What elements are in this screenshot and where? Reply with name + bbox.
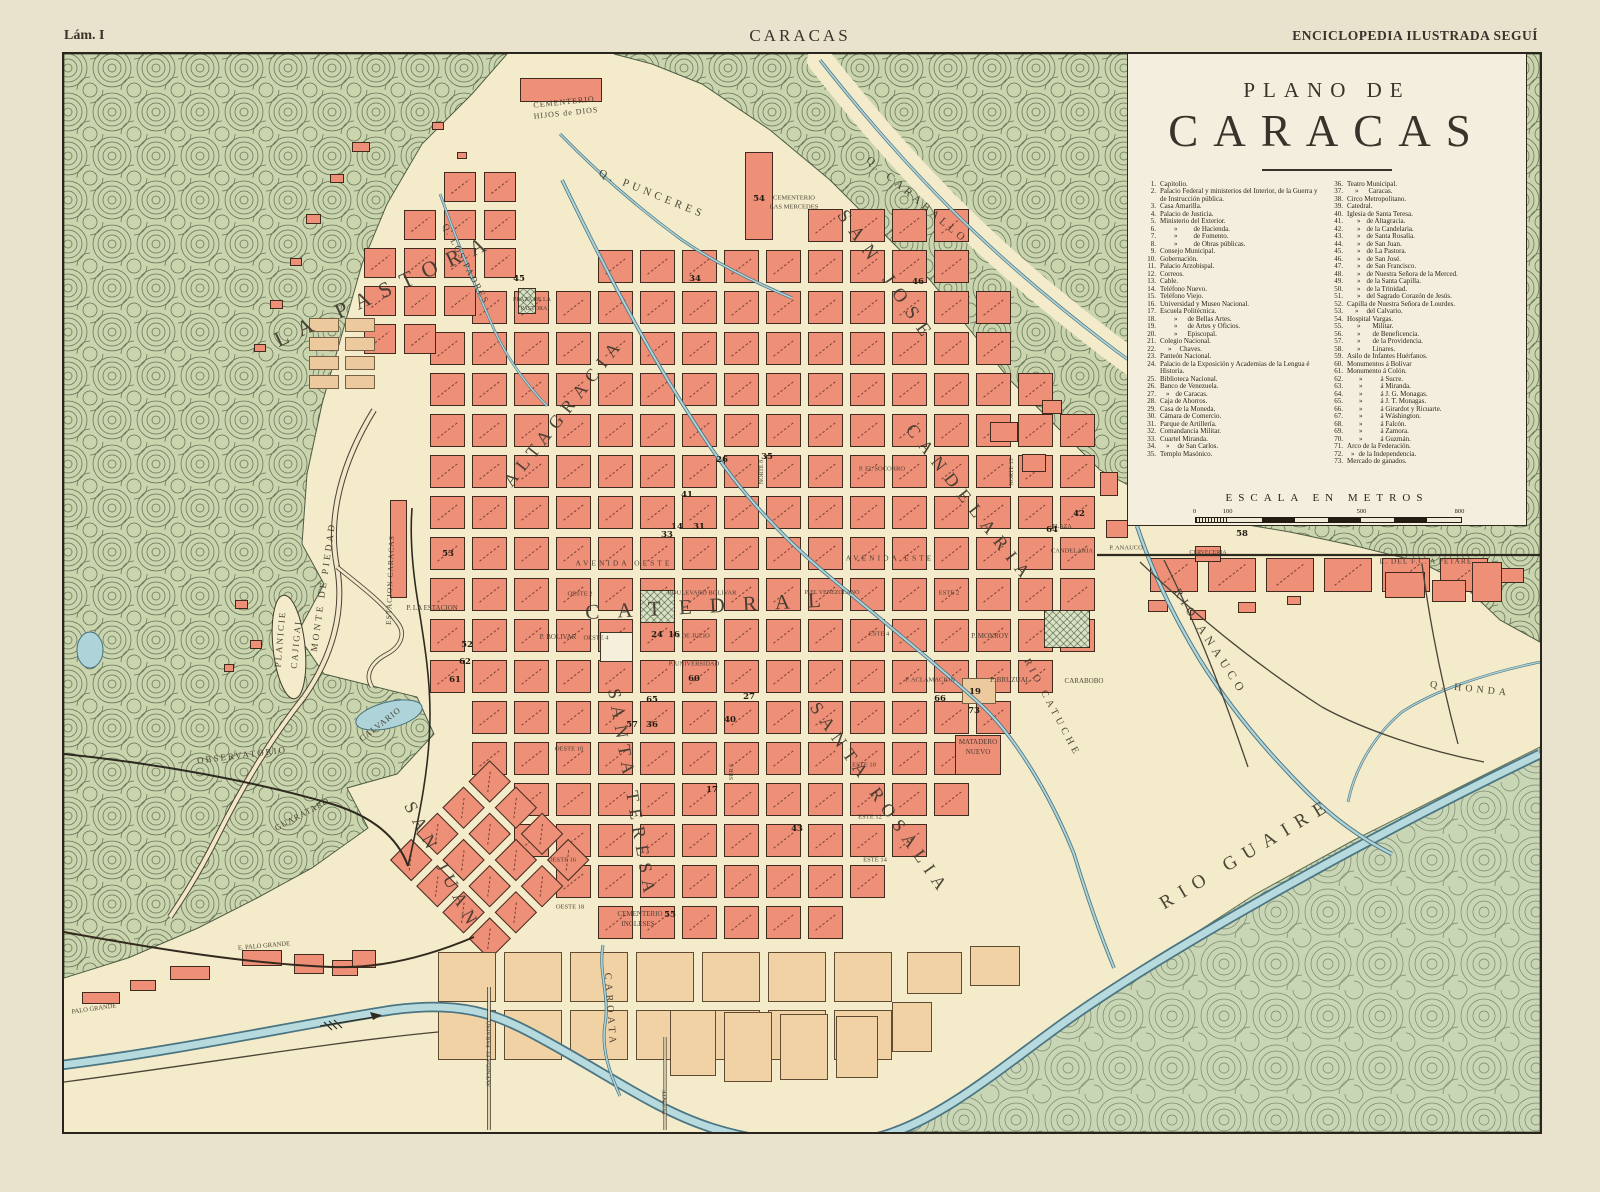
city-block xyxy=(640,496,675,529)
city-block xyxy=(514,373,549,406)
scale-bar-segments xyxy=(1195,517,1462,523)
city-block xyxy=(990,422,1018,442)
map-label: CARABOBO xyxy=(1065,677,1104,685)
city-block xyxy=(808,537,843,570)
city-block xyxy=(724,291,759,324)
legend-item: 66.»á Girardot y Ricuarte. xyxy=(1329,406,1514,414)
city-block xyxy=(724,414,759,447)
map-number-marker: 35 xyxy=(761,452,773,462)
map-number-marker: 43 xyxy=(791,824,803,834)
map-label: BOULEVARD BOLIVAR xyxy=(668,590,737,597)
city-block xyxy=(1018,414,1053,447)
city-block xyxy=(766,332,801,365)
page: { "header": { "plate": "Lám. I", "title"… xyxy=(0,0,1600,1192)
map-label: MATADERO xyxy=(959,738,997,746)
city-block xyxy=(724,250,759,283)
city-block xyxy=(556,332,591,365)
city-block xyxy=(808,250,843,283)
city-block xyxy=(934,537,969,570)
city-block xyxy=(640,455,675,488)
city-block xyxy=(242,950,282,966)
city-block xyxy=(682,865,717,898)
city-block xyxy=(598,414,633,447)
city-block xyxy=(808,455,843,488)
map-label: P. EL SOCORRO xyxy=(859,466,905,473)
city-block xyxy=(934,291,969,324)
city-block xyxy=(892,496,927,529)
city-block xyxy=(1106,520,1128,538)
city-block xyxy=(598,496,633,529)
city-block xyxy=(290,258,302,266)
map-label: ESTE 4 xyxy=(869,631,889,638)
map-label: P. LA ESTACION xyxy=(406,604,457,612)
city-block xyxy=(598,291,633,324)
city-block xyxy=(1060,414,1095,447)
city-block xyxy=(850,291,885,324)
map-label: OESTE 4 xyxy=(583,635,608,642)
city-block xyxy=(514,578,549,611)
legend-item: 19.»de Artes y Oficios. xyxy=(1142,323,1321,331)
city-block xyxy=(1100,472,1118,496)
city-block xyxy=(1238,602,1256,613)
map-number-marker: 31 xyxy=(693,522,705,532)
city-block xyxy=(976,701,1011,734)
city-block xyxy=(640,414,675,447)
city-block xyxy=(1148,600,1168,612)
map-number-marker: 62 xyxy=(459,657,471,667)
city-block xyxy=(224,664,234,672)
city-block xyxy=(1432,580,1466,602)
city-block xyxy=(724,660,759,693)
map-number-marker: 40 xyxy=(724,715,736,725)
map-label: AVENIDA EL PARAISO xyxy=(486,1021,493,1088)
map-label: ESTE 10 xyxy=(852,762,876,769)
legend-item: 68.»á Falcón. xyxy=(1329,421,1514,429)
scale-tick: 0 xyxy=(1193,508,1196,515)
city-block xyxy=(766,373,801,406)
map-number-marker: 17 xyxy=(706,785,718,795)
city-block xyxy=(306,214,321,224)
city-block xyxy=(514,332,549,365)
city-block xyxy=(484,172,516,202)
city-block xyxy=(808,906,843,939)
city-block xyxy=(892,742,927,775)
city-block xyxy=(934,250,969,283)
map-number-marker: 42 xyxy=(1073,509,1085,519)
city-block xyxy=(724,783,759,816)
map-label: ESTE 2 xyxy=(939,590,959,597)
city-block xyxy=(430,414,465,447)
city-block xyxy=(472,455,507,488)
city-block xyxy=(808,291,843,324)
city-block xyxy=(556,496,591,529)
city-block xyxy=(430,496,465,529)
city-block xyxy=(682,742,717,775)
city-block xyxy=(724,1012,772,1082)
map-label: P. ANAUCO xyxy=(1109,545,1143,552)
city-block xyxy=(556,701,591,734)
city-block xyxy=(976,578,1011,611)
city-block xyxy=(682,537,717,570)
city-block xyxy=(892,373,927,406)
city-block xyxy=(430,373,465,406)
map-number-marker: 26 xyxy=(716,455,728,465)
plaza-park xyxy=(1044,610,1090,648)
city-block xyxy=(309,337,339,351)
city-block xyxy=(1287,596,1301,605)
map-number-marker: 45 xyxy=(513,274,525,284)
city-block xyxy=(970,946,1020,986)
city-block xyxy=(766,537,801,570)
map-number-marker: 46 xyxy=(912,277,924,287)
scale-bar: ESCALA EN METROS 0100500800 xyxy=(1128,492,1526,524)
city-block xyxy=(724,619,759,652)
city-block xyxy=(934,783,969,816)
map-title-line1: PLANO DE xyxy=(1128,78,1526,103)
map-title-line2: CARACAS xyxy=(1128,105,1526,157)
city-block xyxy=(472,578,507,611)
map-label: PUENTE xyxy=(662,1090,669,1115)
city-block xyxy=(556,660,591,693)
city-block xyxy=(514,701,549,734)
map-label: INGLESES xyxy=(621,920,654,928)
city-block xyxy=(345,375,375,389)
city-block xyxy=(934,414,969,447)
legend-item: 67.»á Wáshington. xyxy=(1329,413,1514,421)
city-block xyxy=(976,373,1011,406)
city-block xyxy=(724,865,759,898)
map-number-marker: 60 xyxy=(688,674,700,684)
map-label: PASTORA xyxy=(521,306,548,312)
city-block xyxy=(724,455,759,488)
city-block xyxy=(892,578,927,611)
city-block xyxy=(766,496,801,529)
city-block xyxy=(670,1010,716,1076)
city-block xyxy=(1042,400,1062,414)
city-block xyxy=(682,824,717,857)
city-block xyxy=(892,701,927,734)
city-block xyxy=(682,701,717,734)
city-block xyxy=(345,337,375,351)
city-block xyxy=(850,824,885,857)
scale-tick: 500 xyxy=(1357,508,1367,515)
map-number-marker: 57 xyxy=(626,720,638,730)
city-block xyxy=(345,356,375,370)
publisher-name: ENCICLOPEDIA ILUSTRADA SEGUÍ xyxy=(1292,28,1538,44)
map-number-marker: 52 xyxy=(461,640,473,650)
map-label: AVENIDA OESTE xyxy=(576,559,673,568)
city-block xyxy=(294,954,324,974)
city-block xyxy=(766,906,801,939)
city-block xyxy=(780,1014,828,1080)
riverbank-southeast xyxy=(900,747,1540,1132)
city-block xyxy=(934,619,969,652)
city-block xyxy=(472,414,507,447)
city-block xyxy=(682,291,717,324)
scale-label: ESCALA EN METROS xyxy=(1128,492,1526,504)
city-block xyxy=(808,619,843,652)
city-block xyxy=(892,619,927,652)
city-block xyxy=(598,865,633,898)
map-number-marker: 41 xyxy=(681,490,693,500)
city-block xyxy=(934,701,969,734)
city-block xyxy=(850,414,885,447)
map-label: CEMENTERIO xyxy=(773,195,815,202)
city-block xyxy=(766,414,801,447)
map-number-marker: 66 xyxy=(934,694,946,704)
city-block xyxy=(768,952,826,1002)
map-label: P. ACLAMACION xyxy=(905,677,955,684)
map-number-marker: 54 xyxy=(753,194,765,204)
city-block xyxy=(170,966,210,980)
city-block xyxy=(724,332,759,365)
city-block xyxy=(850,865,885,898)
legend-panel: PLANO DE CARACAS 1.Capitolio.2.Palacio F… xyxy=(1127,53,1527,526)
city-block xyxy=(1472,562,1502,602)
scale-tick: 800 xyxy=(1455,508,1465,515)
city-block xyxy=(976,291,1011,324)
map-label: E. DEL F.C. A PETARE xyxy=(1380,557,1473,566)
city-block xyxy=(850,660,885,693)
city-block xyxy=(808,496,843,529)
city-block xyxy=(808,373,843,406)
city-block xyxy=(598,455,633,488)
city-block xyxy=(472,619,507,652)
city-block xyxy=(702,952,760,1002)
city-block xyxy=(892,1002,932,1052)
city-block xyxy=(766,291,801,324)
legend-item: 6.»de Hacienda. xyxy=(1142,226,1321,234)
map-number-marker: 65 xyxy=(646,695,658,705)
city-block xyxy=(472,373,507,406)
legend-item: 73.Mercado de ganados. xyxy=(1329,458,1514,466)
city-block xyxy=(682,455,717,488)
city-block xyxy=(640,742,675,775)
city-block xyxy=(472,537,507,570)
city-block xyxy=(850,373,885,406)
city-block xyxy=(570,1010,628,1060)
city-block xyxy=(270,300,283,309)
city-block xyxy=(850,332,885,365)
city-block xyxy=(570,952,628,1002)
map-label: P. BRUZUAL xyxy=(990,676,1030,684)
city-block xyxy=(254,344,266,352)
legend-item: 61.Monumento á Colón. xyxy=(1329,368,1514,376)
legend-item: 5.Ministerio del Exterior. xyxy=(1142,218,1321,226)
map-label: LAS MERCEDES xyxy=(770,204,819,211)
map-number-marker: 53 xyxy=(442,549,454,559)
city-block xyxy=(976,455,1011,488)
city-block xyxy=(404,324,436,354)
map-label: NORTE 8 xyxy=(759,460,765,484)
city-block xyxy=(636,952,694,1002)
map-label: AVENIDA ESTE xyxy=(846,554,935,563)
map-label: P. UNIVERSIDAD xyxy=(669,661,720,668)
map-label: ESTE 12 xyxy=(858,814,882,821)
legend-item: 71.Arco de la Federación. xyxy=(1329,443,1514,451)
city-block xyxy=(892,209,927,242)
legend-column-right: 36.Teatro Municipal.37.»Caracas.38.Circo… xyxy=(1329,181,1514,466)
city-block xyxy=(309,356,339,370)
city-block xyxy=(808,660,843,693)
city-block xyxy=(556,455,591,488)
city-block xyxy=(432,122,444,130)
map-number-marker: 64 xyxy=(1046,525,1058,535)
city-block xyxy=(834,952,892,1002)
map-number-marker: 58 xyxy=(1236,529,1248,539)
city-block xyxy=(766,701,801,734)
city-block xyxy=(934,373,969,406)
map-label: P. BOLIVAR xyxy=(540,633,577,641)
city-block xyxy=(850,496,885,529)
city-block xyxy=(235,600,248,609)
map-label: SUR 6 xyxy=(729,764,735,780)
city-block xyxy=(556,291,591,324)
city-block xyxy=(640,332,675,365)
city-block xyxy=(682,373,717,406)
city-block xyxy=(724,906,759,939)
city-block xyxy=(766,660,801,693)
city-block xyxy=(640,250,675,283)
city-block xyxy=(457,152,467,159)
city-block xyxy=(1060,578,1095,611)
map-number-marker: 55 xyxy=(664,910,676,920)
city-block xyxy=(514,537,549,570)
city-block xyxy=(976,332,1011,365)
city-block xyxy=(766,619,801,652)
city-block xyxy=(309,375,339,389)
city-block xyxy=(598,250,633,283)
city-block xyxy=(504,1010,562,1060)
legend-columns: 1.Capitolio.2.Palacio Federal y minister… xyxy=(1128,179,1526,466)
map-label: NUEVO xyxy=(966,748,991,756)
map-label: CEMENTERIO xyxy=(617,910,662,918)
map-label: ESTE 14 xyxy=(863,857,887,864)
map-number-marker: 14 xyxy=(671,522,683,532)
city-block xyxy=(514,660,549,693)
city-block xyxy=(640,373,675,406)
city-block xyxy=(1022,454,1046,472)
city-block xyxy=(808,783,843,816)
map-label: OESTE 16 xyxy=(548,857,576,864)
city-block xyxy=(808,414,843,447)
city-block xyxy=(330,174,344,183)
legend-item: 2.Palacio Federal y ministerios del Inte… xyxy=(1142,188,1321,203)
map-label: NORTE 13 xyxy=(1009,458,1015,485)
map-number-marker: 73 xyxy=(968,706,980,716)
map-number-marker: 61 xyxy=(449,675,461,685)
city-block xyxy=(766,783,801,816)
map-label: OESTE 10 xyxy=(555,746,583,753)
map-label: CERVECERIA xyxy=(1189,550,1226,556)
city-block xyxy=(130,980,156,991)
city-block xyxy=(404,210,436,240)
city-block xyxy=(1385,572,1425,598)
city-block xyxy=(514,742,549,775)
map-label: PLAZA DE LA xyxy=(513,297,551,303)
map-number-marker: 36 xyxy=(646,720,658,730)
city-block xyxy=(352,950,376,968)
scale-tick: 100 xyxy=(1223,508,1233,515)
city-block xyxy=(850,701,885,734)
city-block xyxy=(430,619,465,652)
city-block xyxy=(472,496,507,529)
city-block xyxy=(682,906,717,939)
city-block xyxy=(836,1016,878,1078)
map-label: OESTE 2 xyxy=(567,591,592,598)
city-block xyxy=(430,455,465,488)
map-number-marker: 19 xyxy=(969,687,981,697)
city-block xyxy=(766,250,801,283)
legend-item: 24.Palacio de la Exposición y Academias … xyxy=(1142,361,1321,376)
city-block xyxy=(1150,558,1198,592)
city-block xyxy=(766,742,801,775)
city-block xyxy=(808,824,843,857)
city-block xyxy=(444,172,476,202)
city-block xyxy=(934,332,969,365)
map-canvas: PLANO DE CARACAS 1.Capitolio.2.Palacio F… xyxy=(62,52,1542,1134)
city-block xyxy=(472,332,507,365)
map-number-marker: 24 xyxy=(651,630,663,640)
map-label: OESTE 18 xyxy=(556,904,584,911)
city-block xyxy=(472,701,507,734)
city-block xyxy=(472,660,507,693)
map-number-marker: 16 xyxy=(668,630,680,640)
city-block xyxy=(724,496,759,529)
city-block xyxy=(640,291,675,324)
title-rule xyxy=(1262,169,1392,171)
scale-bar-graphic: 0100500800 xyxy=(1195,508,1460,524)
city-block xyxy=(724,824,759,857)
city-block xyxy=(504,952,562,1002)
city-block xyxy=(444,286,476,316)
legend-item: 69.»á Zamora. xyxy=(1329,428,1514,436)
map-label: P. MONROY xyxy=(971,632,1009,640)
city-block xyxy=(682,332,717,365)
city-block xyxy=(352,142,370,152)
city-block xyxy=(1060,455,1095,488)
city-block xyxy=(438,952,496,1002)
city-block xyxy=(907,952,962,994)
city-block xyxy=(556,783,591,816)
map-number-marker: 34 xyxy=(689,274,701,284)
city-block xyxy=(682,414,717,447)
city-block xyxy=(1208,558,1256,592)
map-label: CANDELARIA xyxy=(1051,548,1093,555)
city-block xyxy=(724,537,759,570)
city-block xyxy=(1266,558,1314,592)
map-number-marker: 27 xyxy=(743,692,755,702)
legend-column-left: 1.Capitolio.2.Palacio Federal y minister… xyxy=(1142,181,1321,466)
city-block xyxy=(514,496,549,529)
legend-item: 35.Templo Masónico. xyxy=(1142,451,1321,459)
city-block xyxy=(724,373,759,406)
map-label: P. EL VENEZOLANO xyxy=(805,590,860,596)
city-block xyxy=(808,332,843,365)
west-pond xyxy=(77,632,103,668)
legend-item: 62.»á Sucre. xyxy=(1329,376,1514,384)
city-block xyxy=(1324,558,1372,592)
city-block xyxy=(766,865,801,898)
city-block xyxy=(250,640,262,649)
city-block xyxy=(808,865,843,898)
